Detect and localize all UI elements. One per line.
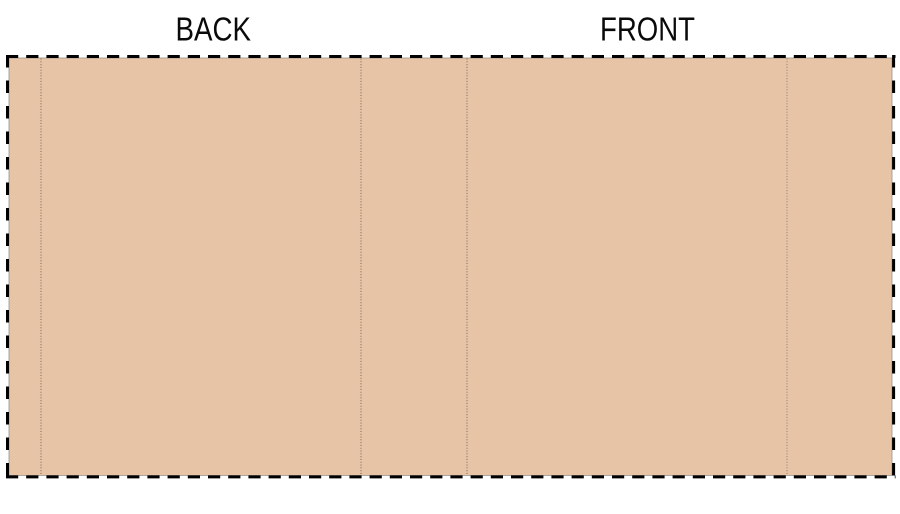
- svg-text:BACK: BACK: [176, 10, 252, 47]
- svg-text:FRONT: FRONT: [600, 10, 695, 47]
